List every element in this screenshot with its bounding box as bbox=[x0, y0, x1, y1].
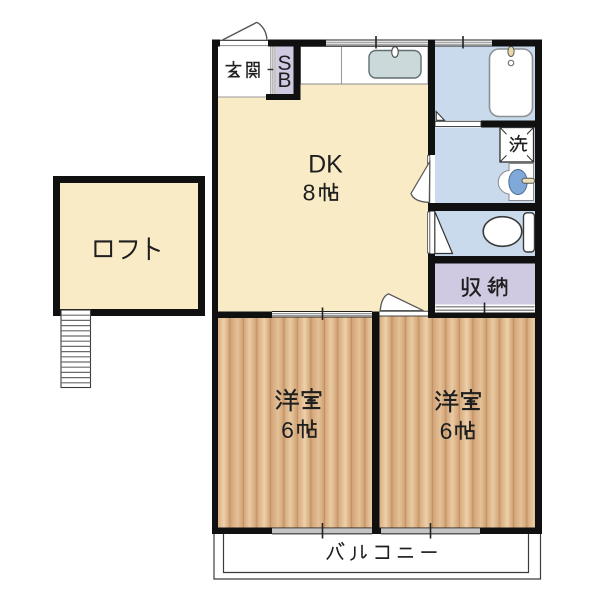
svg-text:B: B bbox=[277, 69, 291, 92]
svg-text:6: 6 bbox=[281, 417, 294, 443]
svg-text:6: 6 bbox=[440, 418, 453, 444]
svg-text:8: 8 bbox=[303, 180, 316, 206]
svg-text:DK: DK bbox=[308, 151, 343, 179]
